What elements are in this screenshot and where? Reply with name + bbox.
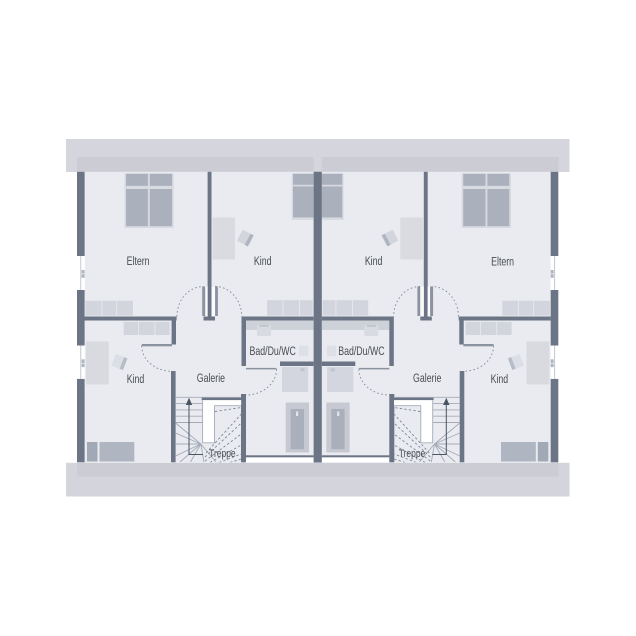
- svg-text:Eltern: Eltern: [491, 255, 514, 269]
- svg-text:Kind: Kind: [254, 255, 272, 269]
- svg-text:Eltern: Eltern: [127, 255, 150, 269]
- svg-text:Bad/Du/WC: Bad/Du/WC: [338, 345, 385, 359]
- svg-text:Galerie: Galerie: [413, 372, 441, 386]
- svg-text:Treppe: Treppe: [209, 448, 236, 460]
- svg-text:Galerie: Galerie: [197, 372, 225, 386]
- svg-text:Kind: Kind: [127, 373, 145, 387]
- svg-text:Kind: Kind: [491, 373, 509, 387]
- svg-text:Kind: Kind: [365, 255, 383, 269]
- svg-text:Bad/Du/WC: Bad/Du/WC: [250, 345, 297, 359]
- svg-text:Treppe: Treppe: [399, 448, 426, 460]
